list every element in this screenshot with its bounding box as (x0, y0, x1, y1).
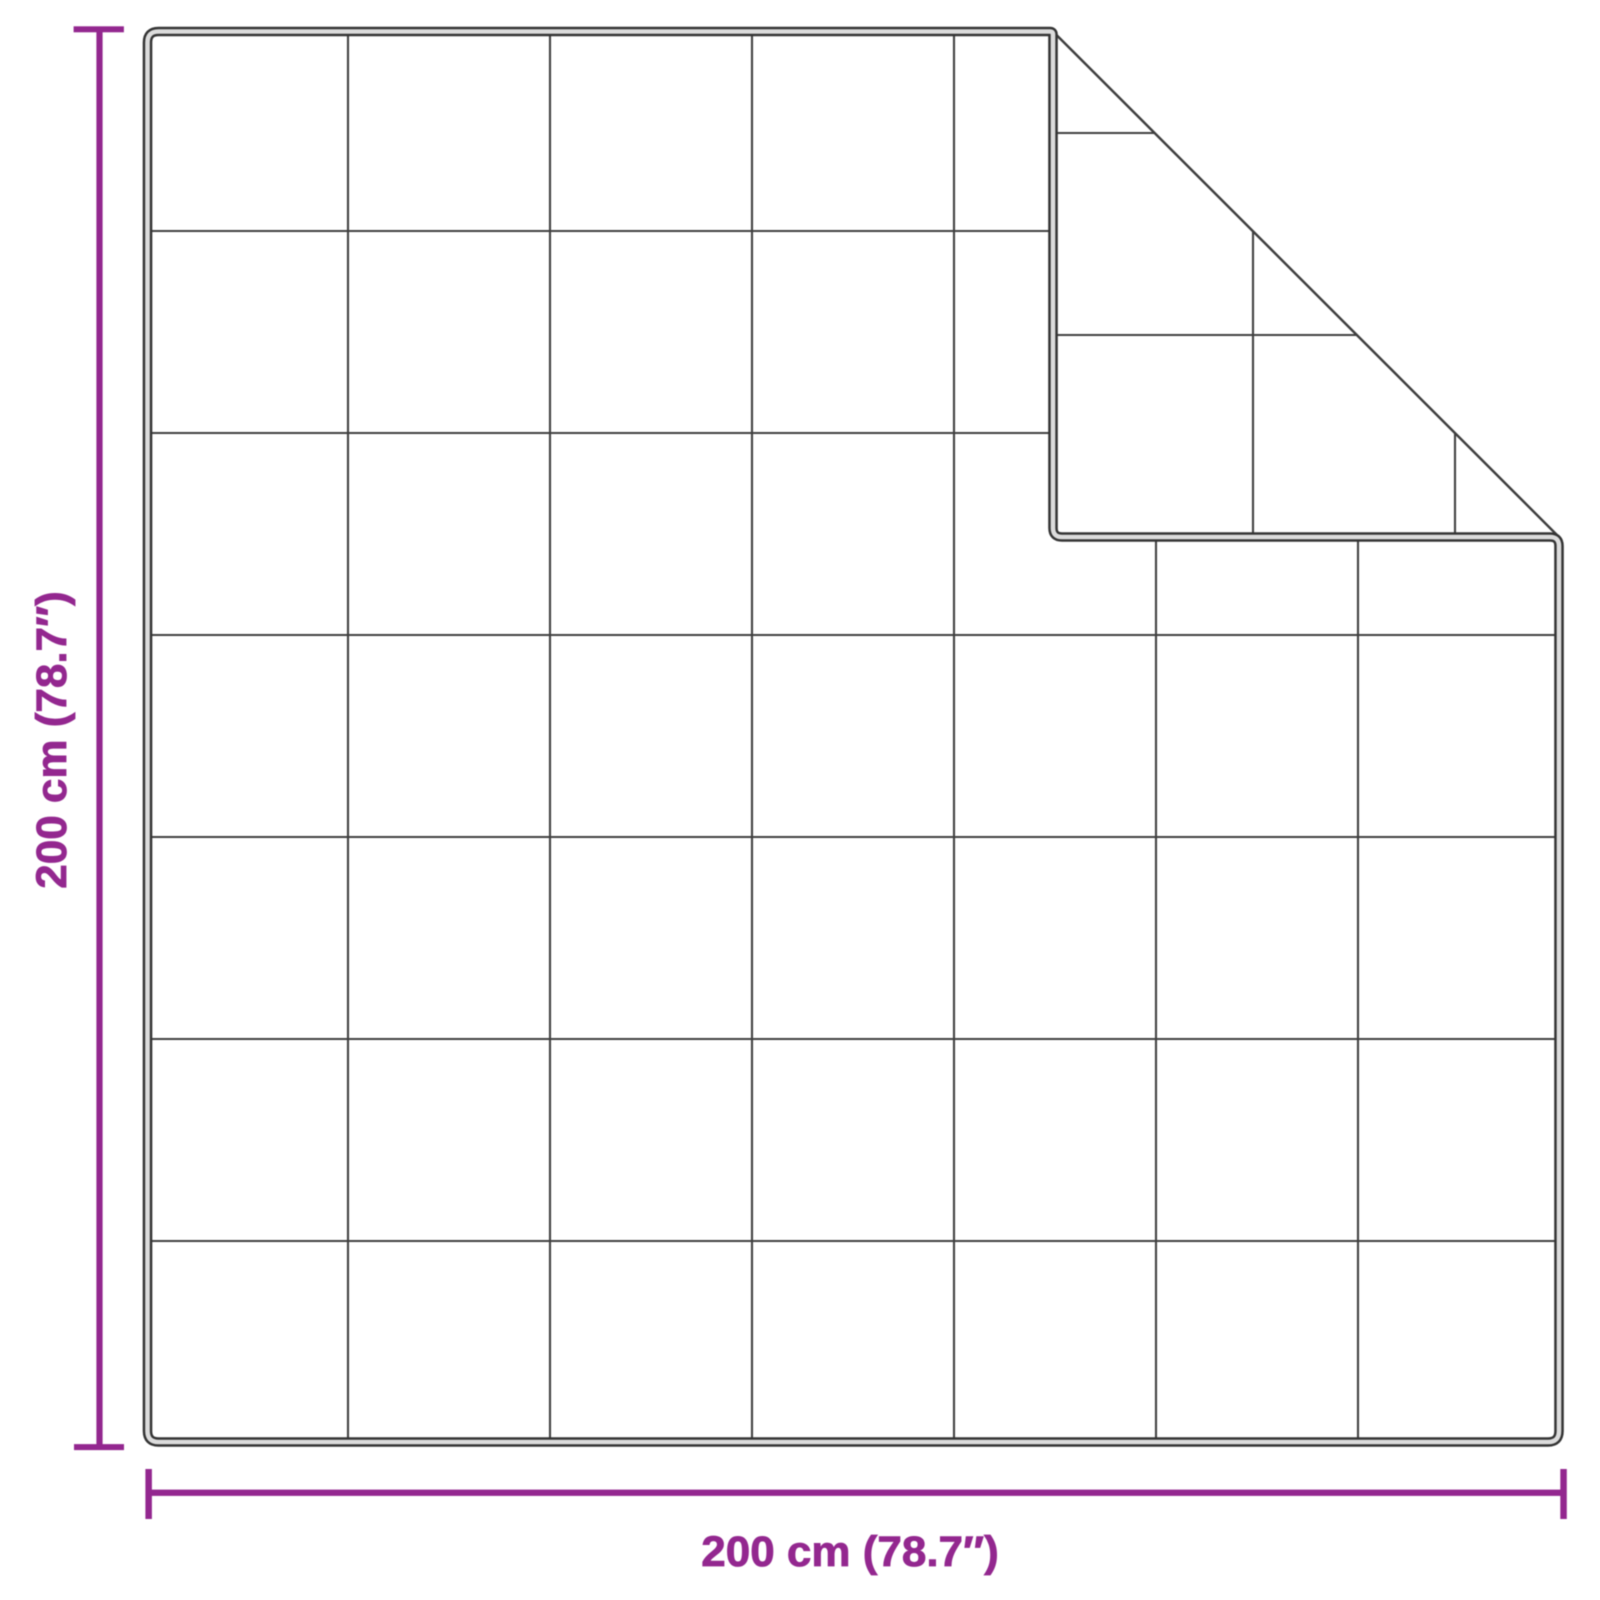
svg-text:200 cm (78.7″): 200 cm (78.7″) (701, 1528, 999, 1576)
svg-text:200 cm (78.7″): 200 cm (78.7″) (28, 591, 76, 889)
